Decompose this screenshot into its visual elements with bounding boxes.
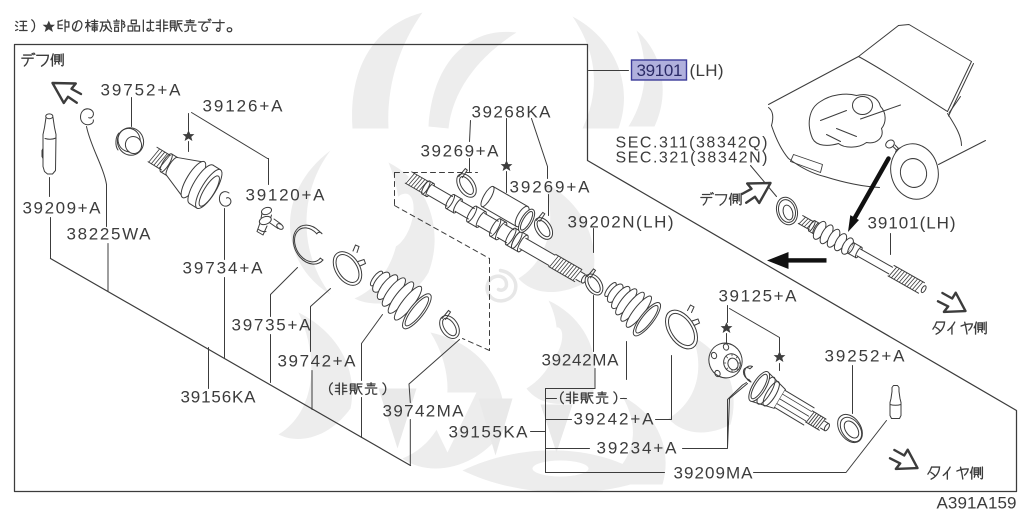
svg-text:39209MA: 39209MA: [674, 464, 754, 483]
svg-text:39234+A: 39234+A: [597, 439, 678, 458]
svg-text:A391A159: A391A159: [937, 494, 1017, 510]
svg-text:39101: 39101: [637, 61, 683, 80]
svg-text:39126+A: 39126+A: [203, 97, 284, 116]
svg-text:39155KA: 39155KA: [449, 423, 529, 442]
svg-text:39242+A: 39242+A: [574, 410, 655, 429]
svg-text:39734+A: 39734+A: [183, 259, 264, 278]
svg-text:39156KA: 39156KA: [181, 388, 257, 407]
svg-text:(LH): (LH): [690, 61, 724, 80]
svg-text:39269+A: 39269+A: [421, 142, 500, 161]
svg-text:39209+A: 39209+A: [23, 199, 102, 218]
svg-text:38225WA: 38225WA: [67, 225, 152, 244]
svg-text:39242MA: 39242MA: [542, 351, 620, 370]
svg-text:39269+A: 39269+A: [510, 178, 591, 197]
svg-text:39202N(LH): 39202N(LH): [568, 213, 674, 232]
svg-text:SEC.321(38342N): SEC.321(38342N): [616, 150, 768, 167]
svg-text:39268KA: 39268KA: [472, 103, 552, 122]
svg-text:39101(LH): 39101(LH): [868, 214, 956, 233]
svg-text:39125+A: 39125+A: [719, 287, 798, 306]
svg-text:39742MA: 39742MA: [383, 402, 465, 421]
svg-text:39742+A: 39742+A: [278, 352, 357, 371]
svg-text:39735+A: 39735+A: [232, 316, 312, 335]
svg-text:39120+A: 39120+A: [246, 186, 326, 205]
svg-text:39252+A: 39252+A: [825, 347, 906, 366]
svg-text:39752+A: 39752+A: [101, 81, 182, 100]
